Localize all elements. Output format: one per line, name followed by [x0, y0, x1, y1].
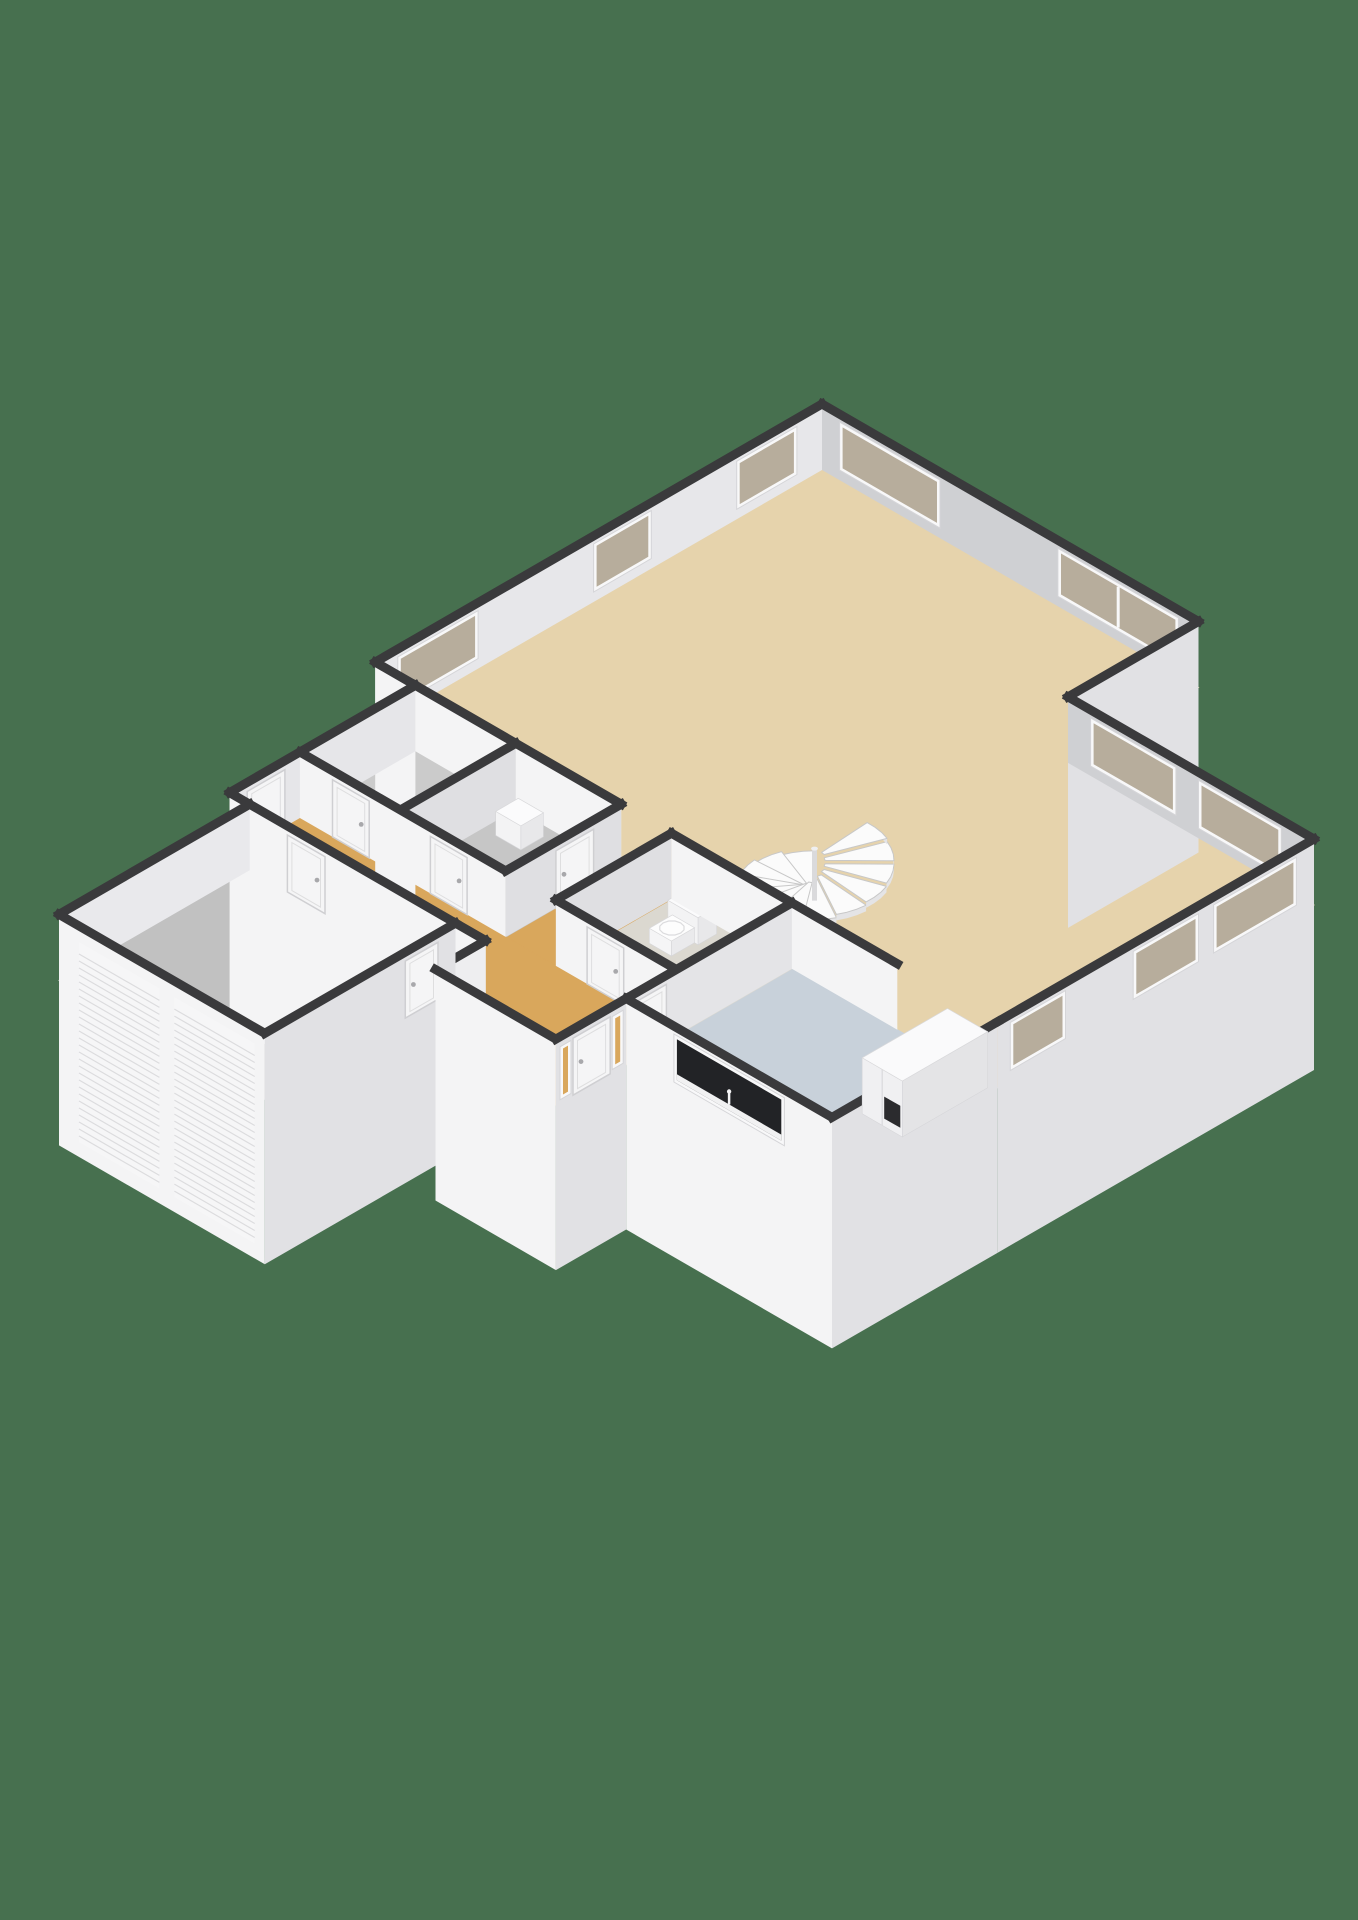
window-glass: [563, 1046, 568, 1095]
floorplan-3d-view[interactable]: [0, 0, 1358, 1920]
door-handle-icon: [562, 872, 567, 877]
door-handle-icon: [315, 878, 320, 883]
door-handle-icon: [359, 822, 364, 827]
door-handle-icon: [411, 982, 416, 987]
window-glass: [615, 1016, 620, 1065]
door-handle-icon: [457, 879, 462, 884]
floorplan-stage: [0, 0, 1358, 1920]
door-handle-icon: [579, 1059, 584, 1064]
door-handle-icon: [613, 969, 618, 974]
